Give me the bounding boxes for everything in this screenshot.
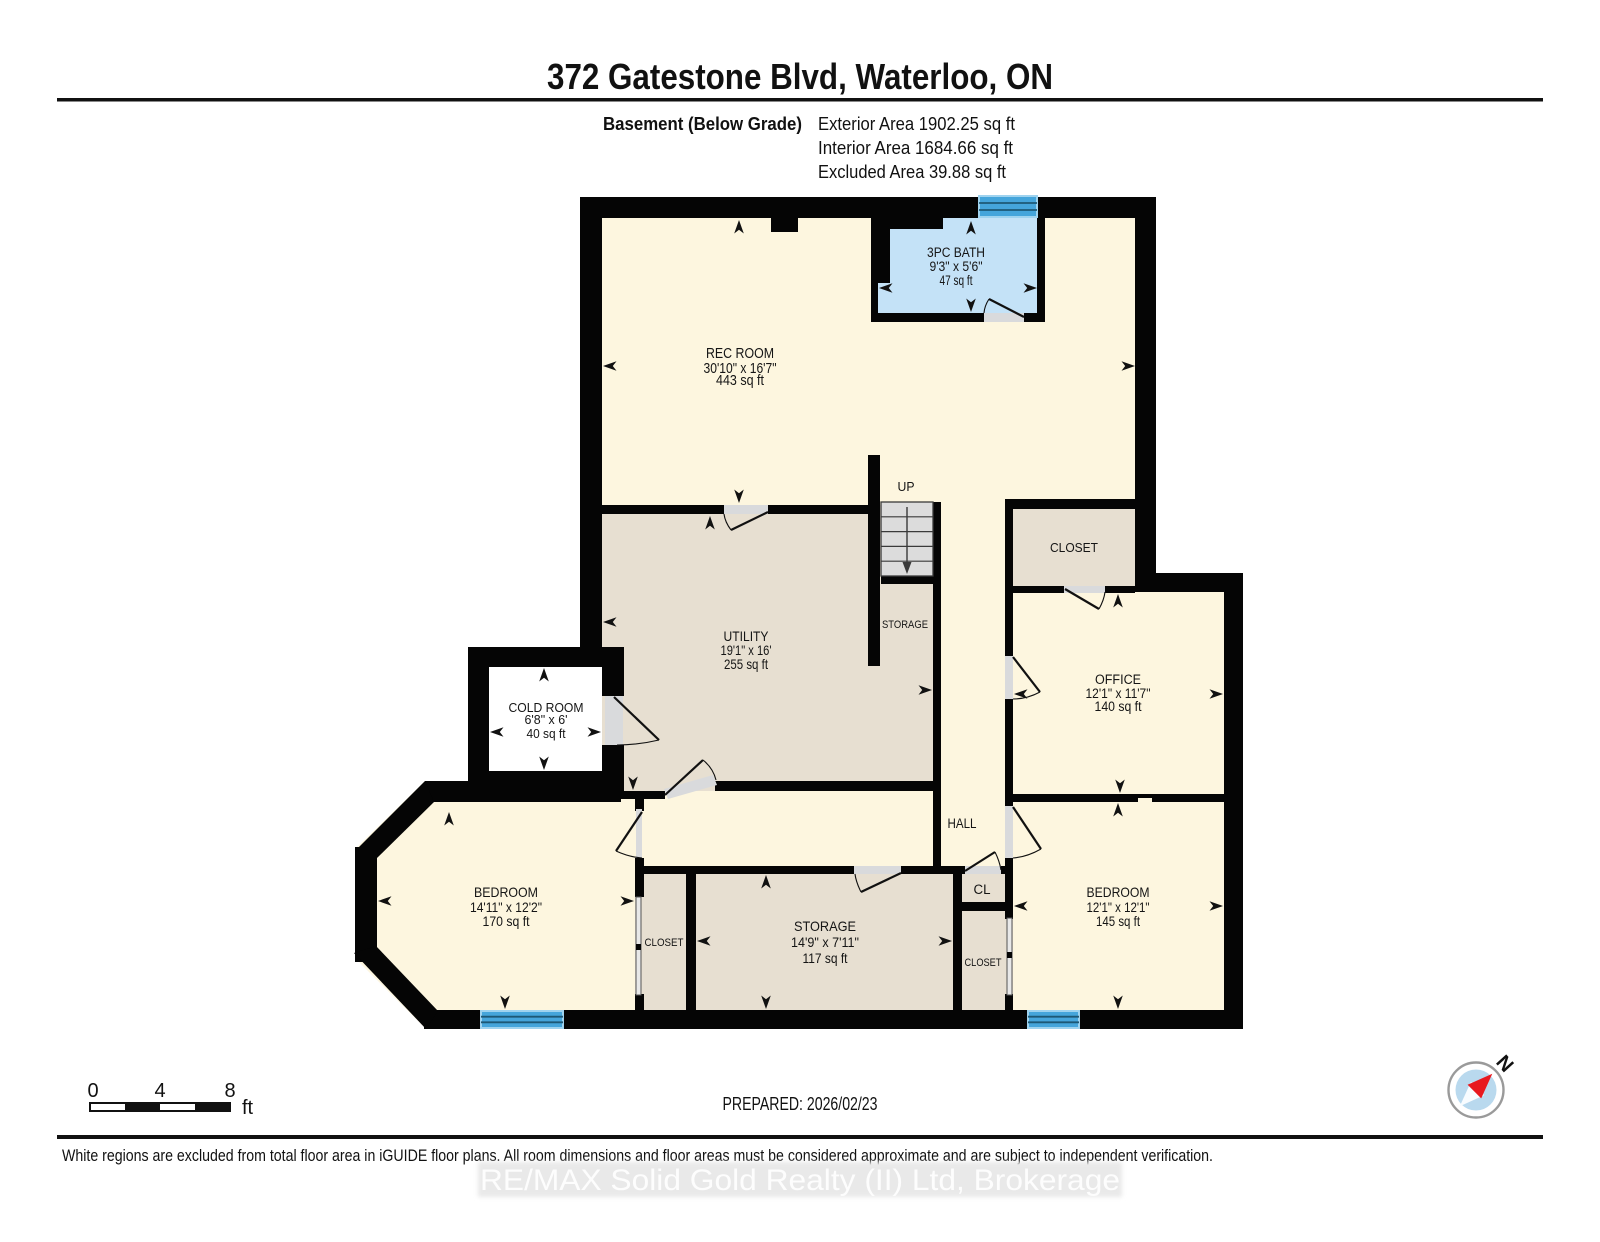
svg-text:170 sq ft: 170 sq ft — [483, 913, 530, 929]
svg-text:0: 0 — [87, 1080, 98, 1102]
svg-text:OFFICE: OFFICE — [1095, 672, 1141, 687]
svg-text:8: 8 — [224, 1080, 235, 1102]
svg-text:CL: CL — [974, 882, 991, 897]
svg-text:145 sq ft: 145 sq ft — [1096, 913, 1140, 929]
svg-text:STORAGE: STORAGE — [794, 918, 856, 934]
svg-text:RE/MAX Solid Gold Realty (II): RE/MAX Solid Gold Realty (II) Ltd, Broke… — [480, 1164, 1120, 1197]
svg-text:140 sq ft: 140 sq ft — [1095, 699, 1142, 714]
svg-text:14'9" x 7'11": 14'9" x 7'11" — [791, 934, 859, 950]
svg-text:STORAGE: STORAGE — [882, 619, 928, 631]
svg-text:9'3" x 5'6": 9'3" x 5'6" — [930, 259, 983, 274]
svg-text:443 sq ft: 443 sq ft — [716, 372, 765, 389]
svg-text:40 sq ft: 40 sq ft — [527, 726, 566, 741]
svg-text:CLOSET: CLOSET — [965, 957, 1002, 969]
svg-text:Basement (Below Grade): Basement (Below Grade) — [603, 114, 802, 134]
svg-text:6'8" x 6': 6'8" x 6' — [525, 712, 568, 727]
svg-text:Interior Area 1684.66 sq ft: Interior Area 1684.66 sq ft — [818, 138, 1013, 158]
svg-text:UP: UP — [898, 479, 915, 494]
svg-text:CLOSET: CLOSET — [645, 937, 684, 949]
svg-text:Excluded Area 39.88 sq ft: Excluded Area 39.88 sq ft — [818, 162, 1006, 182]
svg-text:372 Gatestone Blvd, Waterloo,: 372 Gatestone Blvd, Waterloo, ON — [547, 56, 1053, 97]
svg-text:ft: ft — [242, 1097, 254, 1119]
svg-text:BEDROOM: BEDROOM — [474, 884, 538, 900]
svg-text:4: 4 — [154, 1080, 165, 1102]
svg-text:PREPARED: 2026/02/23: PREPARED: 2026/02/23 — [723, 1094, 878, 1114]
svg-text:BEDROOM: BEDROOM — [1087, 884, 1150, 900]
svg-text:3PC BATH: 3PC BATH — [927, 245, 985, 260]
svg-text:CLOSET: CLOSET — [1050, 540, 1098, 555]
svg-text:255 sq ft: 255 sq ft — [724, 656, 768, 672]
svg-text:117 sq ft: 117 sq ft — [803, 950, 848, 966]
svg-text:Exterior Area 1902.25 sq ft: Exterior Area 1902.25 sq ft — [818, 114, 1015, 134]
svg-text:HALL: HALL — [948, 816, 977, 831]
svg-text:47 sq ft: 47 sq ft — [940, 273, 973, 288]
